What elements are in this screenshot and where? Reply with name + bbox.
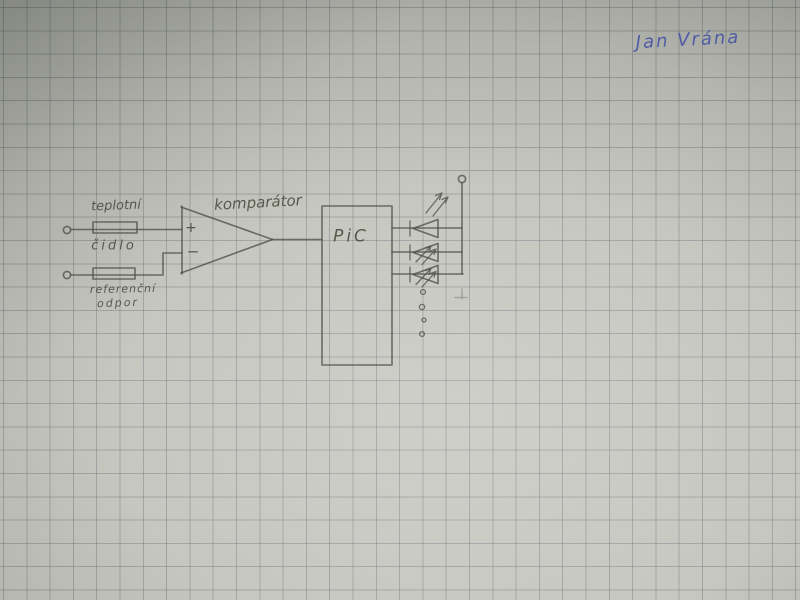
- more-outputs-ellipsis-dots: [419, 290, 426, 337]
- label-reference-line1: referenční: [90, 283, 156, 295]
- led-2-icon: [410, 244, 438, 265]
- faint-rail-mark: [455, 289, 467, 299]
- temperature-sensor-resistor-icon: [93, 222, 137, 233]
- supply-terminal-icon: [458, 175, 465, 182]
- comparator-opamp-icon: [181, 206, 273, 274]
- photographed-schematic-page: teplotní čidlo referenční odpor komparát…: [0, 0, 800, 600]
- label-reference-line2: odpor: [97, 297, 139, 309]
- reference-resistor-icon: [93, 268, 135, 279]
- label-mcu: PiC: [333, 229, 369, 246]
- comparator-plus-sign: +: [185, 221, 197, 235]
- comparator-minus-sign: −: [187, 245, 200, 260]
- label-comparator: komparátor: [214, 193, 302, 213]
- input-terminal-top-icon: [63, 226, 70, 233]
- led-3-icon: [410, 266, 438, 288]
- label-sensor-line1: teplotní: [91, 199, 141, 214]
- led-1-icon: [410, 193, 448, 238]
- led-output-wires: [392, 228, 463, 274]
- reference-wire: [71, 253, 182, 275]
- input-terminal-bottom-icon: [63, 271, 70, 278]
- label-sensor-line2: čidlo: [91, 240, 137, 253]
